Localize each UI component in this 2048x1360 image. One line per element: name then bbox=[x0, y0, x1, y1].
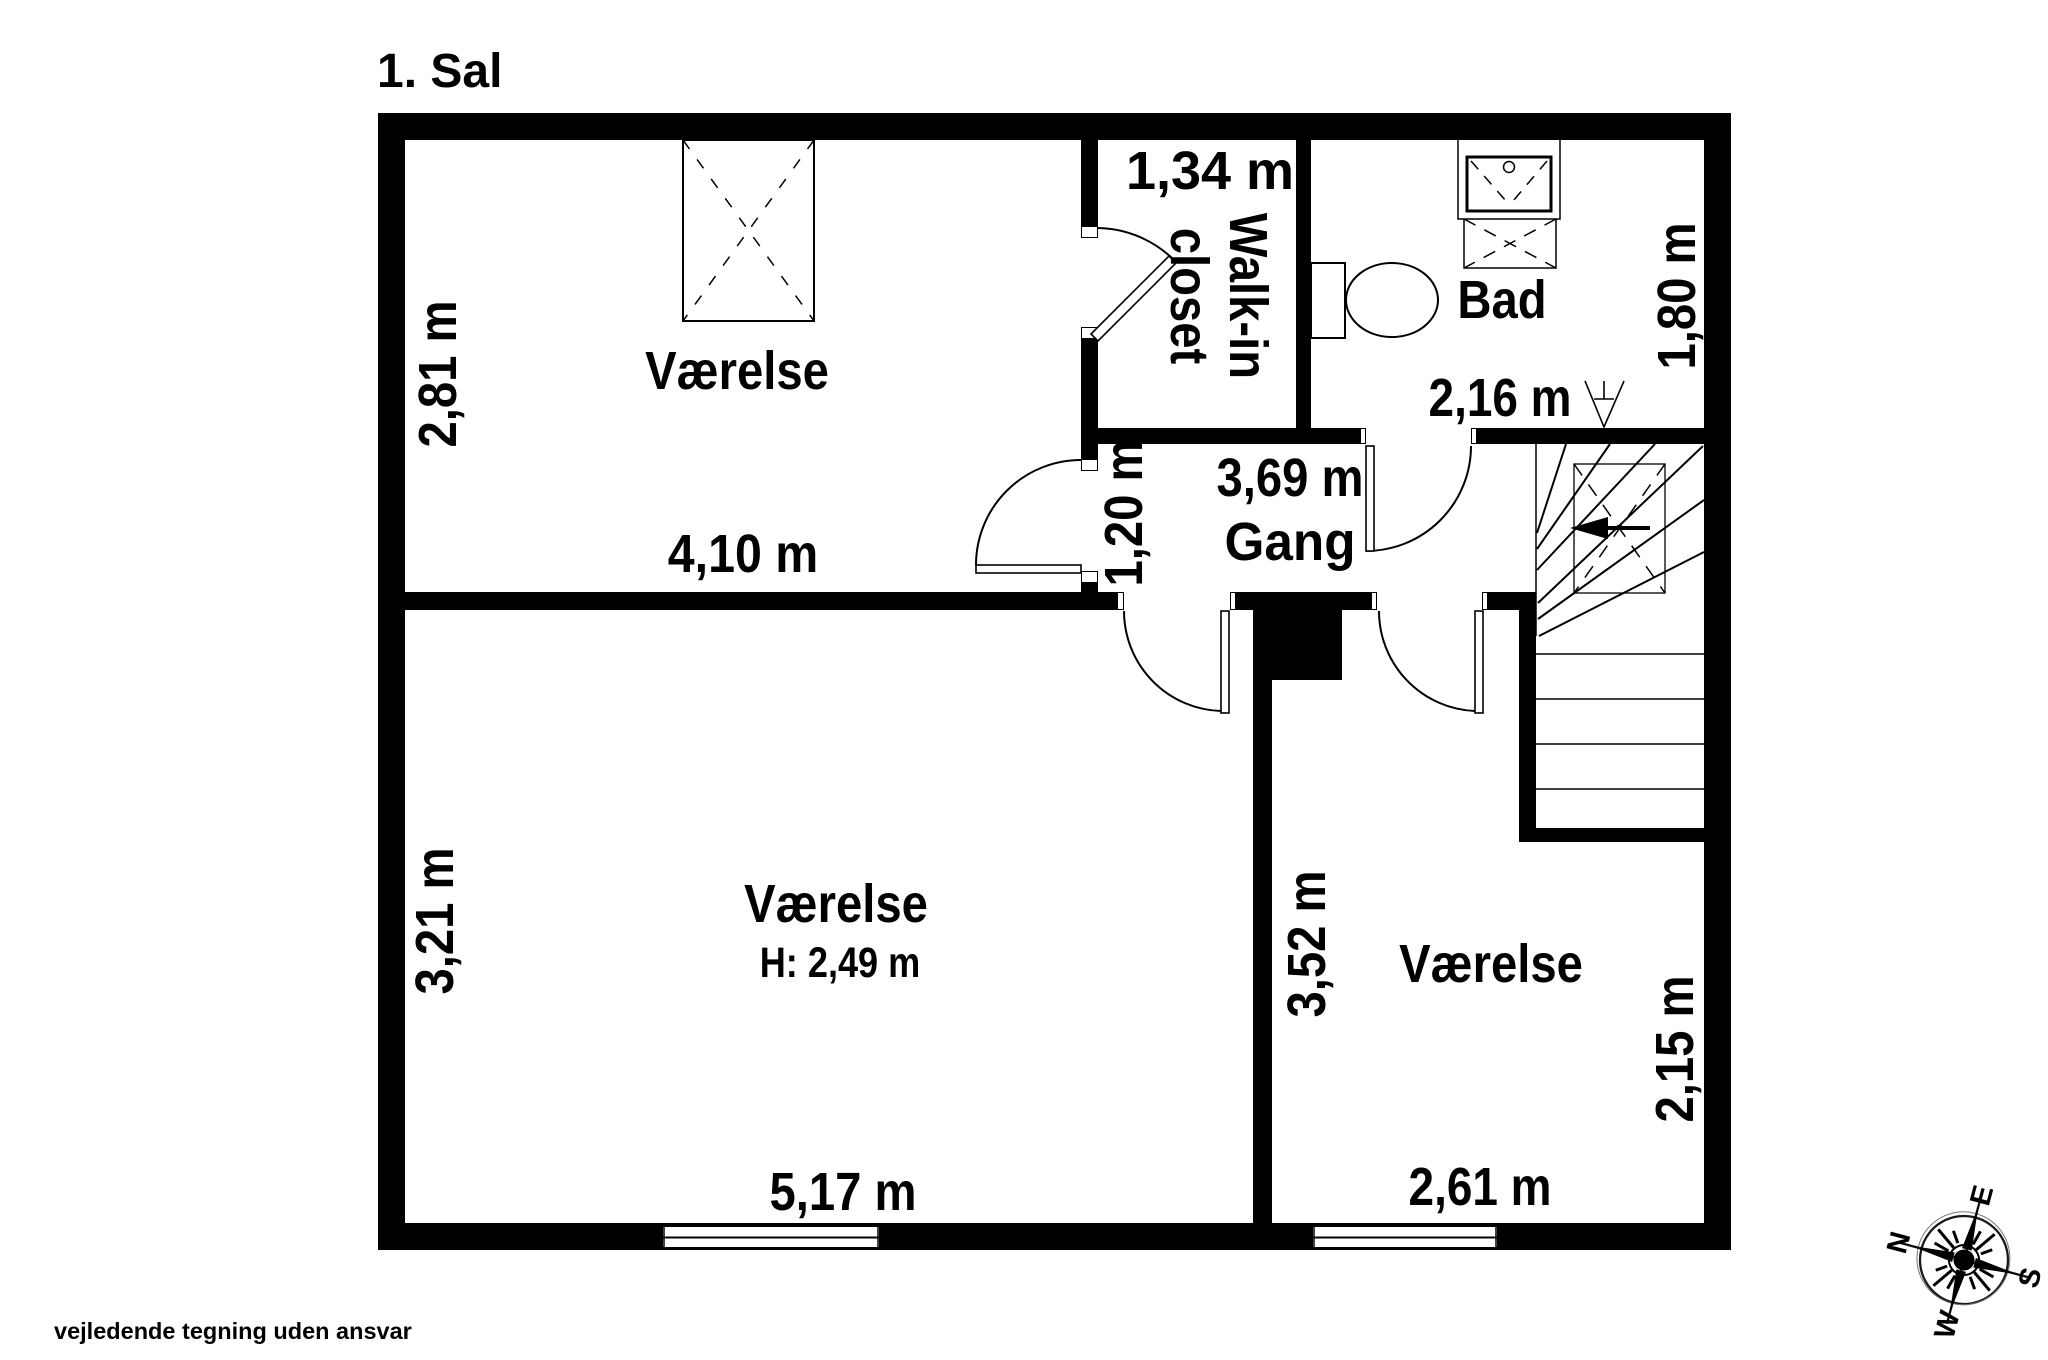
svg-text:2,16 m: 2,16 m bbox=[1429, 368, 1572, 428]
svg-text:vejledende tegning uden ansvar: vejledende tegning uden ansvar bbox=[54, 1318, 412, 1344]
svg-text:1,34 m: 1,34 m bbox=[1126, 141, 1294, 201]
svg-text:3,52 m: 3,52 m bbox=[1276, 870, 1337, 1017]
svg-text:Walk-incloset: Walk-incloset bbox=[1159, 213, 1279, 379]
svg-text:Bad: Bad bbox=[1457, 269, 1546, 330]
svg-text:1. Sal: 1. Sal bbox=[377, 45, 502, 98]
svg-text:Værelse: Værelse bbox=[744, 873, 928, 934]
svg-text:Værelse: Værelse bbox=[645, 340, 829, 401]
svg-text:2,61 m: 2,61 m bbox=[1409, 1157, 1552, 1217]
svg-text:Gang: Gang bbox=[1224, 512, 1355, 572]
svg-text:2,81 m: 2,81 m bbox=[407, 300, 468, 447]
svg-text:Værelse: Værelse bbox=[1399, 933, 1583, 994]
svg-text:3,21 m: 3,21 m bbox=[404, 847, 465, 994]
svg-text:H: 2,49 m: H: 2,49 m bbox=[760, 939, 921, 987]
svg-text:4,10 m: 4,10 m bbox=[668, 524, 818, 584]
svg-text:1,80 m: 1,80 m bbox=[1646, 222, 1707, 369]
svg-text:1,20 m: 1,20 m bbox=[1093, 439, 1154, 586]
svg-text:5,17 m: 5,17 m bbox=[769, 1161, 916, 1222]
svg-text:3,69 m: 3,69 m bbox=[1216, 447, 1363, 508]
svg-text:2,15 m: 2,15 m bbox=[1644, 975, 1705, 1122]
